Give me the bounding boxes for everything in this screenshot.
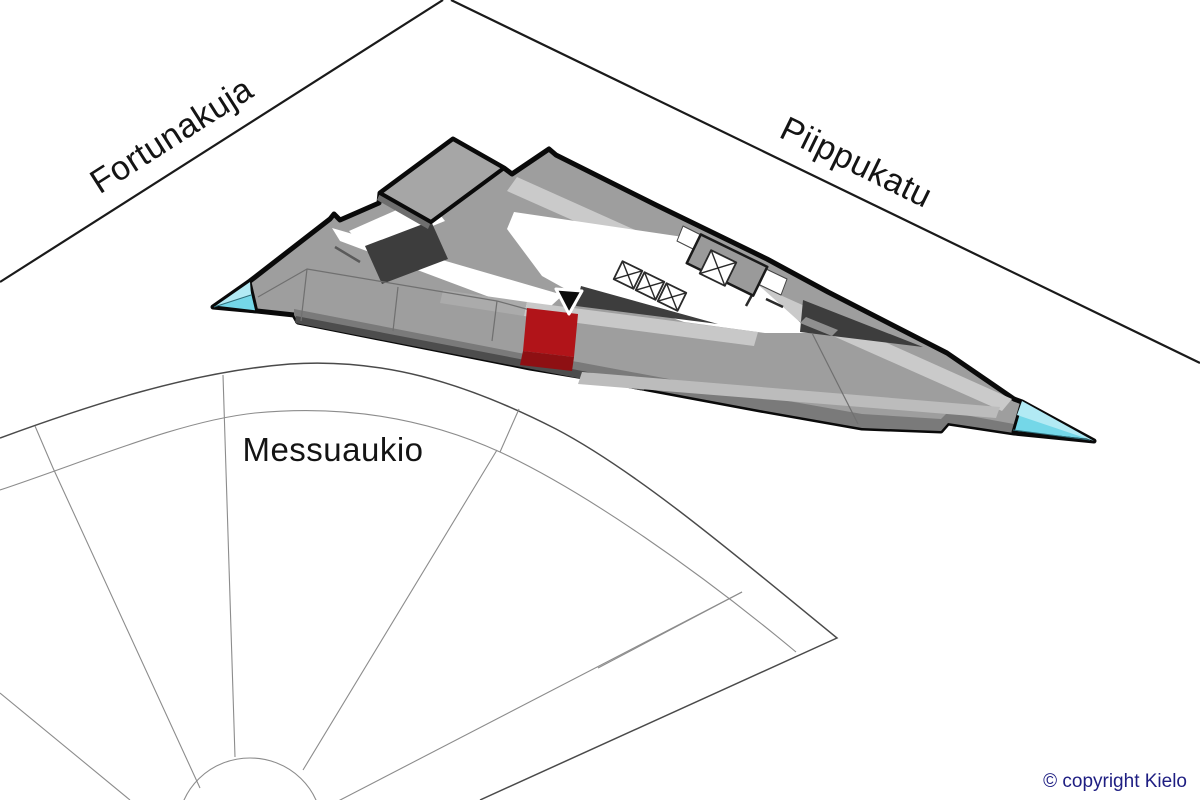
- copyright-notice: © copyright Kielo: [1043, 771, 1187, 793]
- plaza-label-messuaukio: Messuaukio: [242, 431, 423, 469]
- plaza-messuaukio: [0, 363, 837, 800]
- plaza-spoke: [0, 693, 130, 800]
- plaza-spoke: [303, 450, 497, 770]
- building: [213, 139, 1094, 441]
- plaza-spoke: [500, 409, 519, 452]
- floorplan-map: Fortunakuja Piippukatu Messuaukio © copy…: [0, 0, 1200, 800]
- glass-tip-west: [214, 282, 257, 312]
- plaza-spoke: [317, 592, 742, 800]
- plaza-spoke: [223, 375, 235, 757]
- plaza-outer-edge: [0, 363, 837, 800]
- plaza-center-circle: [178, 758, 322, 800]
- selected-unit-face[interactable]: [523, 308, 578, 357]
- plaza-spoke: [35, 426, 200, 788]
